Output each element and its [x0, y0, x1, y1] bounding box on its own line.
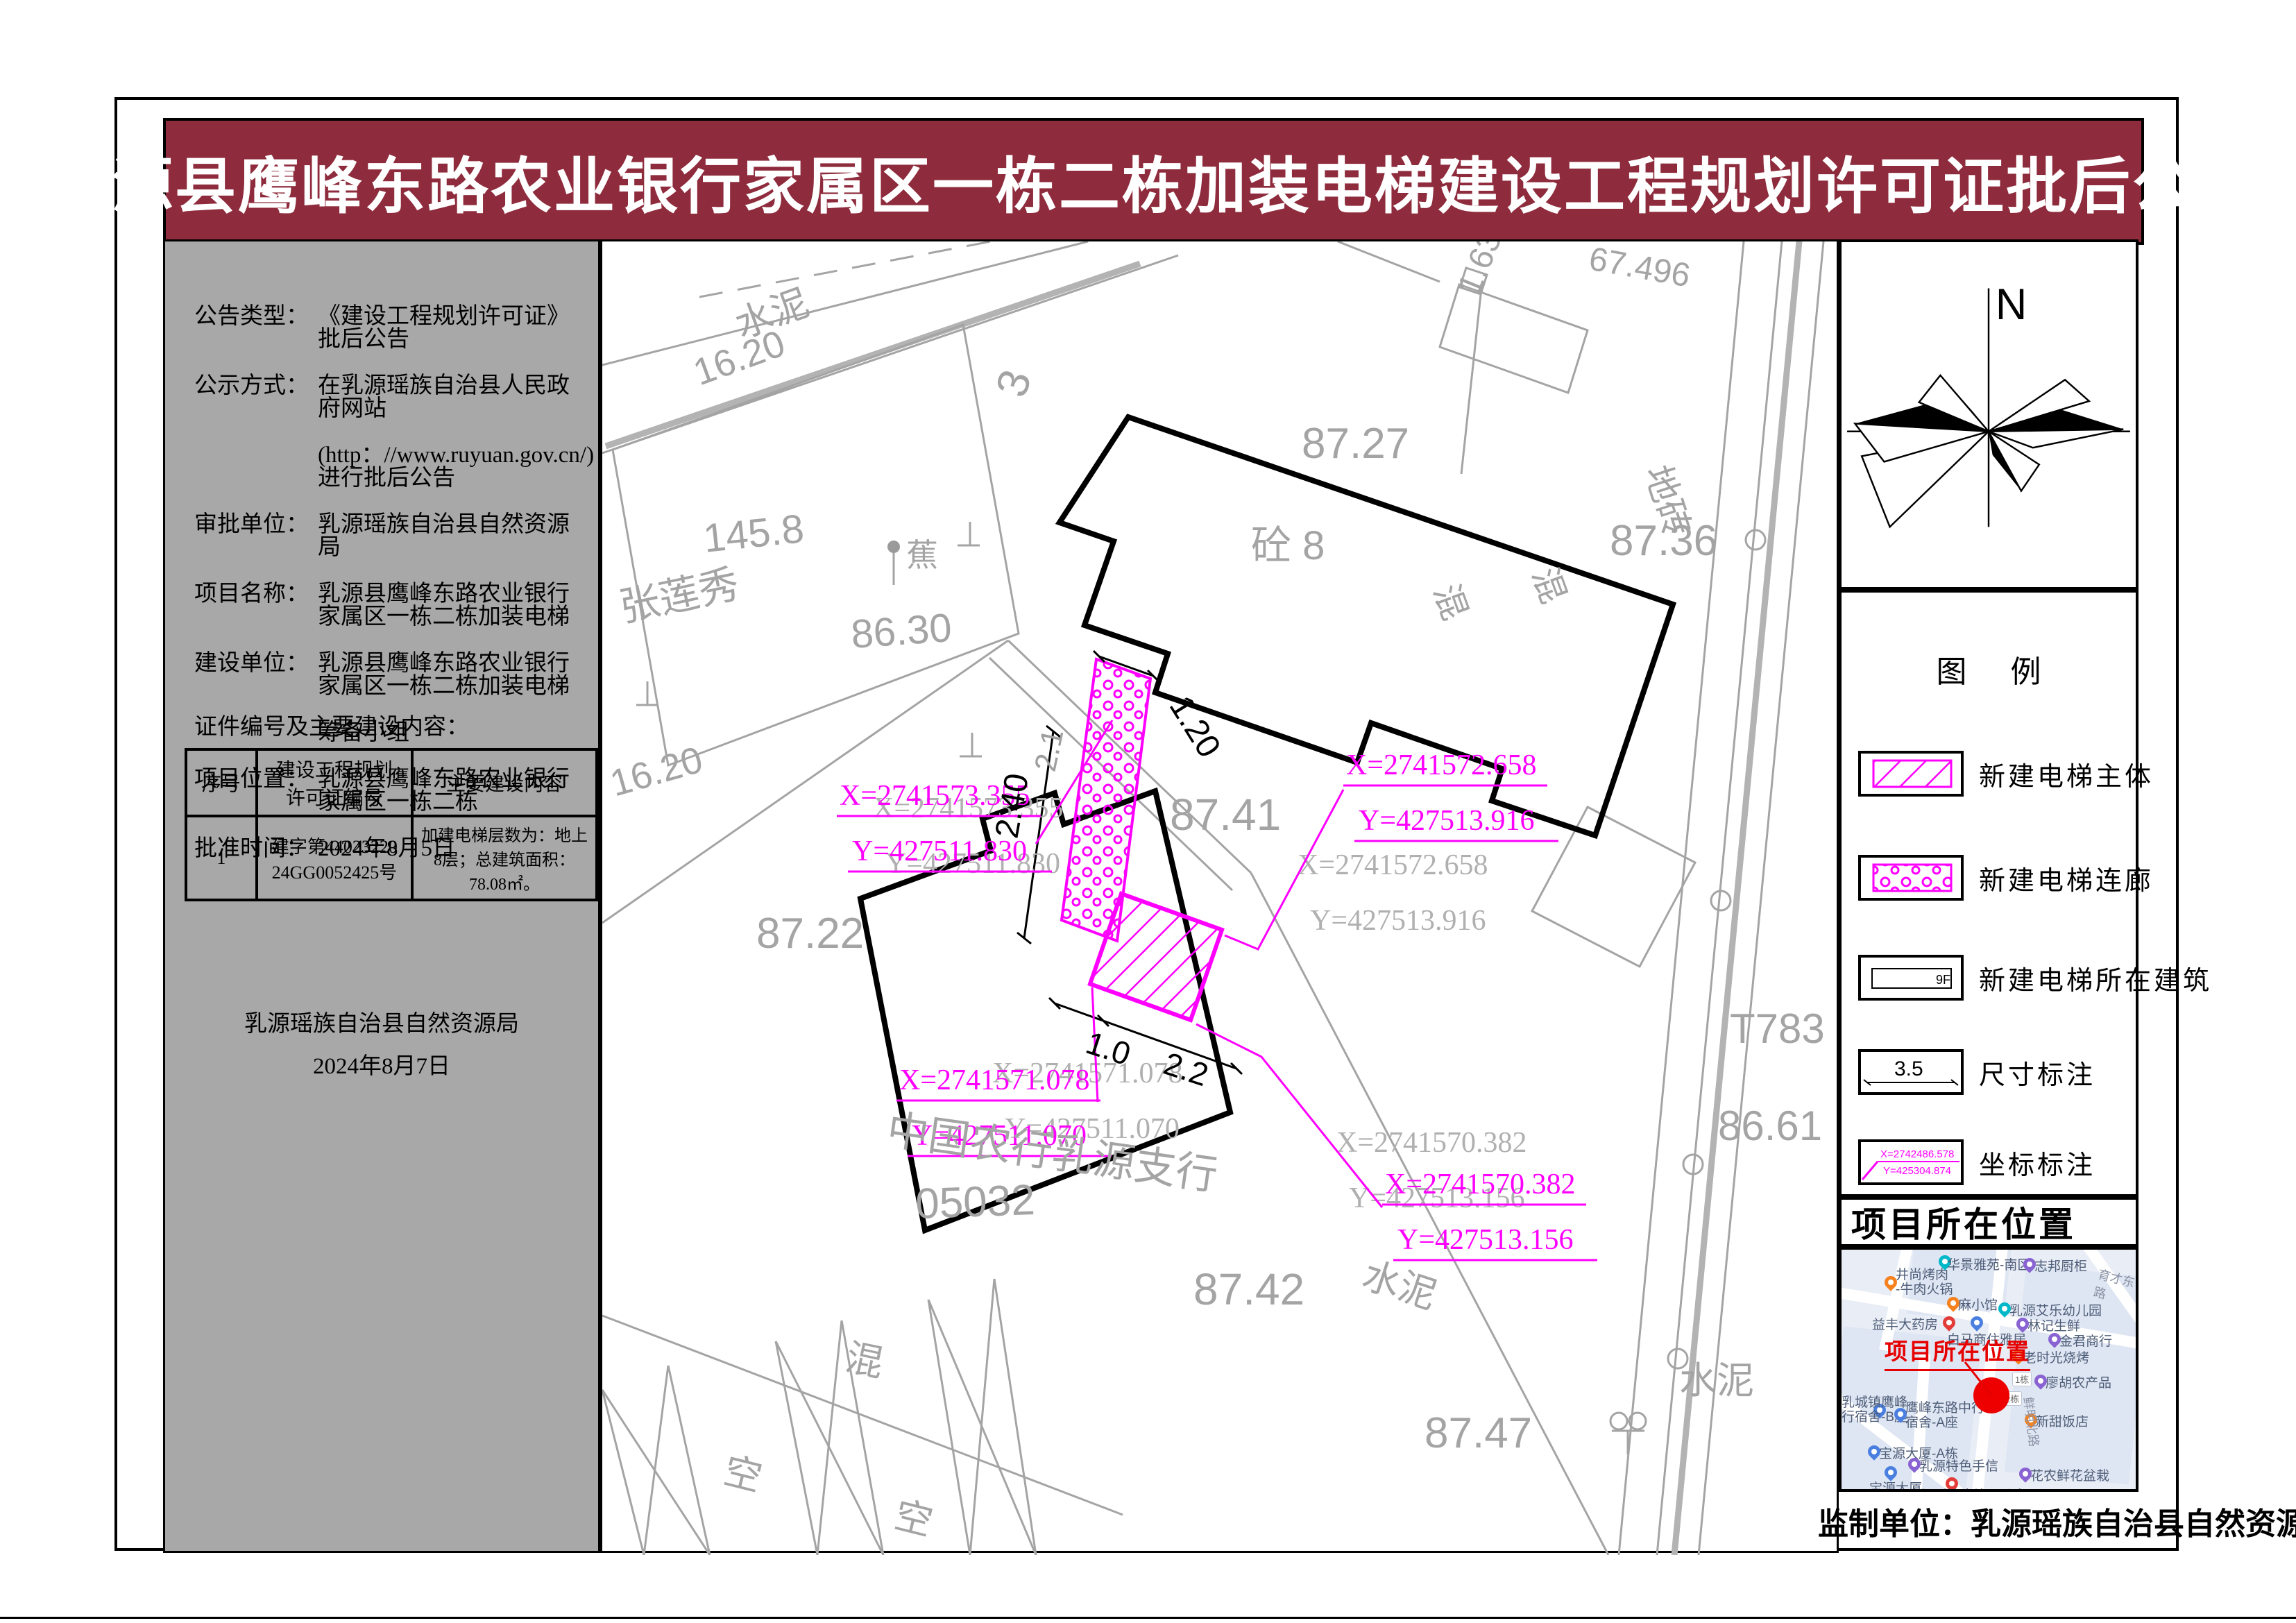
plan-text: X=2741572.658 — [1298, 849, 1488, 881]
plan-text: 87.27 — [1302, 420, 1409, 468]
elevator-corridor-swatch — [1858, 855, 1964, 901]
signature-date: 2024年8月7日 — [165, 1046, 598, 1088]
plan-text: Y=427513.916 — [1359, 805, 1535, 837]
sheet-bottom-edge — [0, 1617, 2296, 1619]
north-arrow-icon: N — [1842, 242, 2136, 587]
permit-table: 序号 建设工程规划 许可证编号 主要建设内容 1 建字第44023220 24G… — [185, 748, 598, 901]
plan-text: 3 — [986, 364, 1041, 402]
plan-text: Y=427513.156 — [1397, 1224, 1574, 1256]
project-location-dot — [1973, 1377, 2009, 1413]
plan-text: 空 — [720, 1450, 766, 1499]
plan-text: 空 — [890, 1494, 937, 1543]
legend-item-coordinate: X=2742486.578 Y=425304.874 坐标标注 — [1858, 1135, 2125, 1189]
site-plan: X=2741573.355Y=427511.830X=2741573.355Y=… — [600, 239, 1839, 1553]
north-label: N — [1996, 280, 2027, 329]
map-poi-label: 金君商行 — [2059, 1334, 2112, 1349]
plan-text: 水泥 — [1679, 1360, 1754, 1402]
plan-text: 05032 — [915, 1176, 1036, 1228]
map-poi-label: 华景雅苑-南区 — [1947, 1258, 2030, 1273]
plan-text: 67.496 — [1586, 241, 1693, 294]
table-caption: 证件编号及主要建设内容： — [194, 708, 469, 741]
svg-text:9F: 9F — [1936, 973, 1950, 987]
compass-panel: N — [1839, 239, 2138, 590]
dimension-swatch: 3.5 — [1858, 1049, 1964, 1095]
col-序号: 序号 — [186, 749, 257, 816]
plan-text: 1.634 — [1451, 241, 1516, 300]
project-location-callout: 项目所在位置 — [1885, 1333, 2030, 1371]
plan-text: X=2741570.382 — [1336, 1127, 1527, 1159]
cell-permit: 建字第44023220 24GG0052425号 — [257, 816, 412, 900]
info-label: 公告类型： — [194, 305, 318, 351]
map-poi-label: 麻小馆 — [1958, 1298, 1998, 1313]
info-panel: 公告类型：《建设工程规划许可证》批后公告公示方式：在乳源瑶族自治县人民政府网站(… — [163, 239, 600, 1553]
info-value: 乳源县鹰峰东路农业银行家属区一栋二栋加装电梯 — [318, 583, 583, 629]
info-line-0: 公告类型：《建设工程规划许可证》批后公告 — [194, 305, 583, 351]
plan-text: 混 — [1427, 579, 1475, 625]
info-line-1: 公示方式：在乳源瑶族自治县人民政府网站 — [194, 375, 583, 420]
svg-text:X=2742486.578: X=2742486.578 — [1880, 1148, 1954, 1160]
plan-text: 86.30 — [849, 605, 953, 657]
legend-item-elevator: 新建电梯主体 — [1858, 747, 2125, 801]
plan-text: 16.20 — [606, 739, 707, 805]
plan-text: 87.42 — [1193, 1264, 1304, 1314]
signature-block: 乳源瑶族自治县自然资源局 2024年8月7日 — [165, 1003, 598, 1088]
info-label: 公示方式： — [194, 375, 318, 420]
coordinate-swatch: X=2742486.578 Y=425304.874 — [1858, 1139, 1964, 1185]
info-value: 在乳源瑶族自治县人民政府网站 — [318, 375, 583, 420]
signature-org: 乳源瑶族自治县自然资源局 — [165, 1003, 598, 1046]
plan-text: X=2741570.382 — [1385, 1169, 1576, 1200]
table-row: 1 建字第44023220 24GG0052425号 加建电梯层数为：地上8层；… — [186, 816, 597, 900]
plan-text: 砼 8 — [1251, 523, 1325, 568]
site-plan-drawing: X=2741573.355Y=427511.830X=2741573.355Y=… — [602, 241, 1841, 1555]
col-许可证编号: 建设工程规划 许可证编号 — [257, 749, 412, 816]
map-poi-label: 乳源瑶族自治县公安局 交通警察大队 — [1908, 1488, 2040, 1492]
legend-panel: 图 例 新建电梯主体 新建电梯连廊 9F 新建电梯所在建筑 — [1839, 590, 2138, 1197]
info-line-2: (http：//www.ruyuan.gov.cn/)进行批后公告 — [194, 444, 583, 490]
svg-text:Y=425304.874: Y=425304.874 — [1883, 1165, 1951, 1177]
producer-note: 监制单位：乳源瑶族自治县自然资源局 — [1818, 1499, 2165, 1543]
legend-item-dimension: 3.5 尺寸标注 — [1858, 1045, 2125, 1099]
legend-item-corridor: 新建电梯连廊 — [1858, 851, 2125, 905]
page-title: 乳源县鹰峰东路农业银行家属区一栋二栋加装电梯建设工程规划许可证批后公告 — [49, 137, 2259, 226]
map-poi-label: 老时光烧烤 — [2023, 1351, 2089, 1366]
plan-text: 87.47 — [1425, 1409, 1532, 1457]
cell-seq: 1 — [186, 816, 257, 900]
survey-labels: 3水泥16.20145.8张莲秀蕉86.3016.2087.2287.27地砖8… — [606, 241, 1825, 1544]
plan-text: 87.36 — [1610, 517, 1717, 565]
plan-text: 87.41 — [1170, 790, 1281, 840]
plan-text: Y=427513.916 — [1310, 905, 1486, 937]
table-header-row: 序号 建设工程规划 许可证编号 主要建设内容 — [186, 749, 597, 816]
col-主要建设内容: 主要建设内容 — [412, 749, 597, 816]
cell-content: 加建电梯层数为：地上8层；总建筑面积：78.08㎡。 — [412, 816, 597, 900]
plan-text: 87.22 — [756, 910, 864, 958]
map-building-badge: 1栋 — [2012, 1372, 2032, 1386]
elevator-main-swatch — [1858, 751, 1964, 797]
map-poi-label: 志邦厨柜 — [2034, 1259, 2087, 1274]
survey-lines — [602, 241, 1823, 1555]
info-label: 项目名称： — [194, 583, 318, 629]
plan-text: Y=427511.830 — [852, 835, 1027, 867]
svg-text:3.5: 3.5 — [1894, 1057, 1923, 1080]
info-line-5: 建设单位：乳源县鹰峰东路农业银行家属区一栋二栋加装电梯 — [194, 652, 583, 698]
map-poi-label: 鹰峰东路中行 宿舍-A座 — [1905, 1401, 1984, 1430]
legend-title: 图 例 — [1842, 647, 2136, 691]
info-value: 《建设工程规划许可证》批后公告 — [318, 305, 583, 351]
plan-text: X=2741571.078 — [899, 1064, 1090, 1096]
info-value: (http：//www.ruyuan.gov.cn/)进行批后公告 — [318, 444, 594, 490]
plan-text: X=2741572.658 — [1346, 749, 1537, 781]
map-poi-label: 乳源艾乐幼儿园 — [2009, 1304, 2102, 1318]
map-poi-label: 益丰大药房 — [1872, 1318, 1938, 1332]
plan-text: T783 — [1730, 1005, 1825, 1052]
plan-text: 86.61 — [1718, 1103, 1822, 1149]
map-poi-label: 花农鲜花盆栽 — [2030, 1469, 2109, 1484]
map-poi-label: 井尚烤肉 -牛肉火锅 — [1896, 1268, 1953, 1297]
plan-text: 混 — [842, 1336, 887, 1385]
plan-text: 水泥 — [1357, 1254, 1441, 1316]
info-value: 乳源县鹰峰东路农业银行家属区一栋二栋加装电梯 — [318, 652, 583, 698]
info-label: 建设单位： — [194, 652, 318, 698]
info-line-4: 项目名称：乳源县鹰峰东路农业银行家属区一栋二栋加装电梯 — [194, 583, 583, 629]
map-poi-label: 林记生鲜 — [2027, 1319, 2080, 1334]
plan-text: 2.1 — [1028, 726, 1071, 774]
map-poi-label: 廖胡农产品 — [2046, 1376, 2111, 1391]
plan-text: 蕉 — [906, 537, 938, 573]
info-line-3: 审批单位：乳源瑶族自治县自然资源局 — [194, 513, 583, 559]
plan-text: 145.8 — [701, 506, 806, 561]
info-value: 乳源瑶族自治县自然资源局 — [318, 513, 583, 559]
map-poi-label: 乳源特色手信 — [1919, 1459, 1998, 1474]
info-label — [194, 444, 318, 490]
existing-building-swatch: 9F — [1858, 955, 1964, 1001]
announcement-poster: 乳源县鹰峰东路农业银行家属区一栋二栋加装电梯建设工程规划许可证批后公告 公告类型… — [0, 0, 2296, 1623]
title-banner: 乳源县鹰峰东路农业银行家属区一栋二栋加装电梯建设工程规划许可证批后公告 — [163, 118, 2144, 245]
info-label: 审批单位： — [194, 513, 318, 559]
legend-item-building: 9F 新建电梯所在建筑 — [1858, 951, 2125, 1005]
map-poi-label: 宝源大厦 — [1869, 1481, 1922, 1492]
location-header: 项目所在位置 — [1839, 1197, 2138, 1247]
location-map: 井尚烤肉 -牛肉火锅华景雅苑-南区志邦厨柜麻小馆乳源艾乐幼儿园益丰大药房白马商住… — [1839, 1247, 2138, 1492]
map-poi-label: 新甜饭店 — [2036, 1415, 2089, 1429]
